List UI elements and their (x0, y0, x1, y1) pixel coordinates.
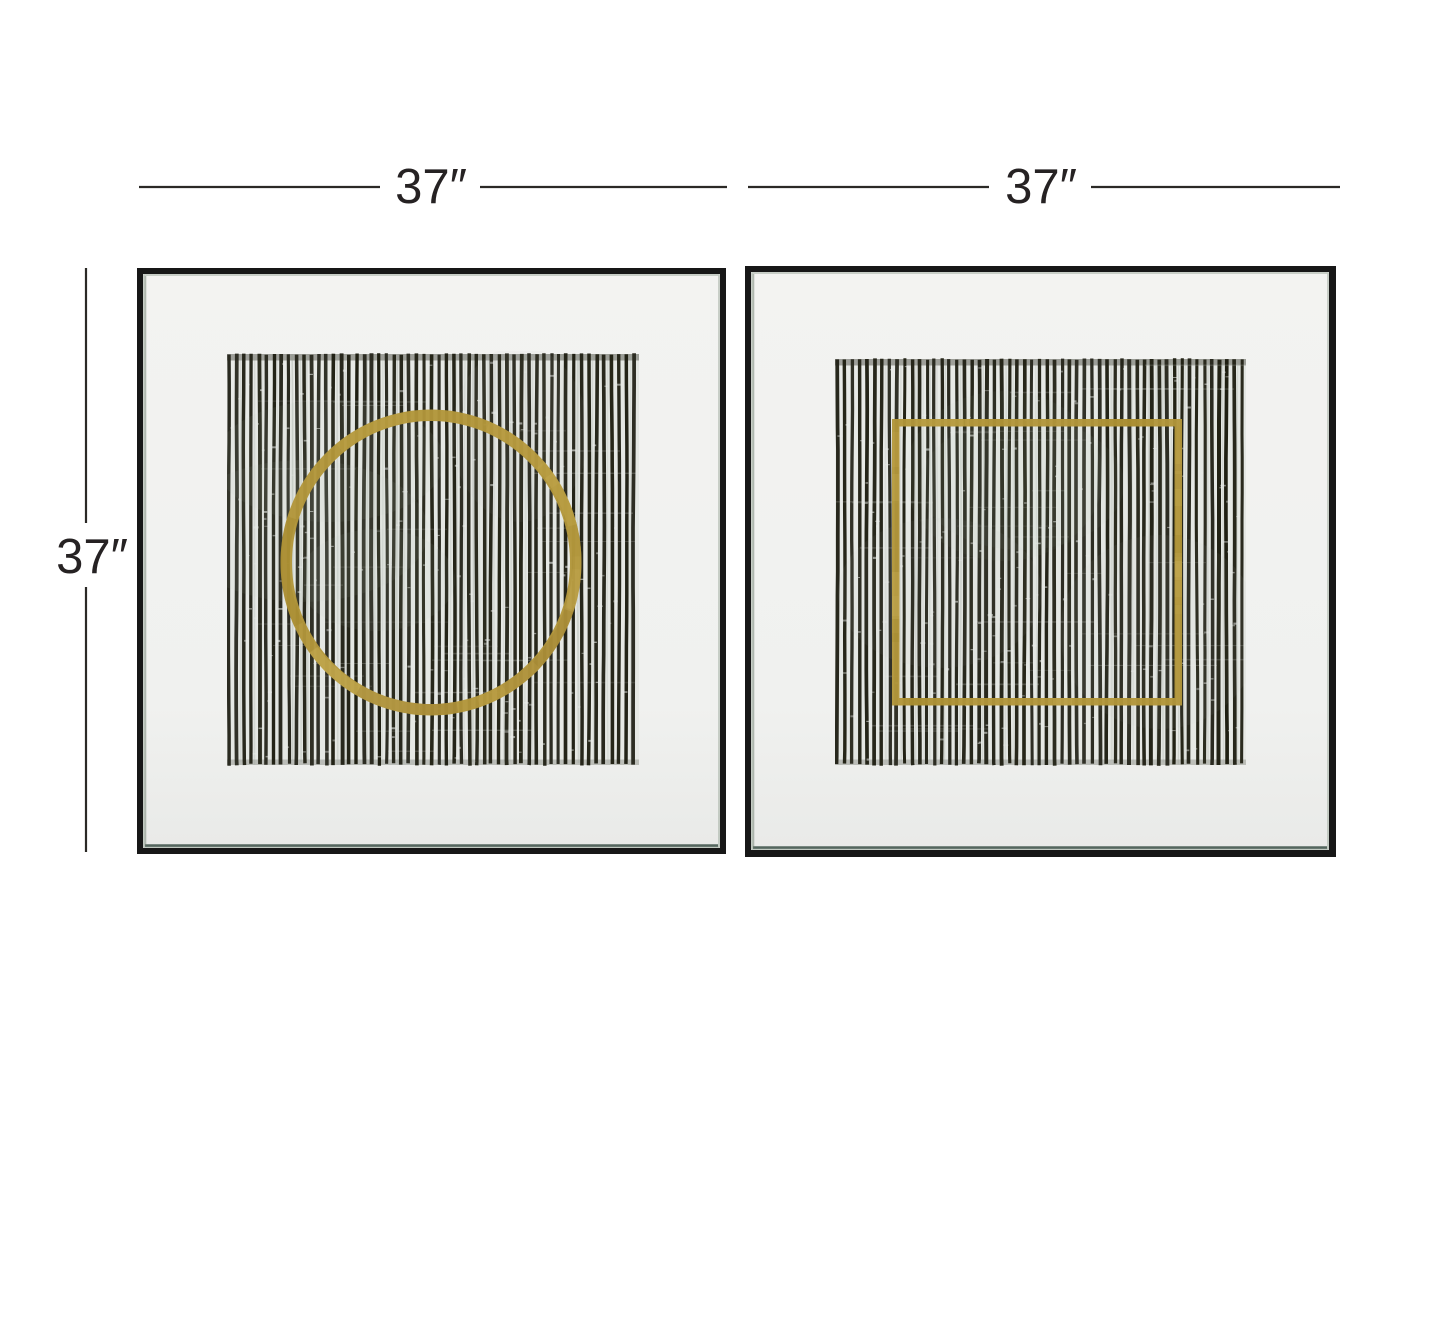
svg-text:37″: 37″ (395, 160, 467, 214)
svg-text:37″: 37″ (56, 530, 128, 584)
svg-text:37″: 37″ (1005, 160, 1077, 214)
